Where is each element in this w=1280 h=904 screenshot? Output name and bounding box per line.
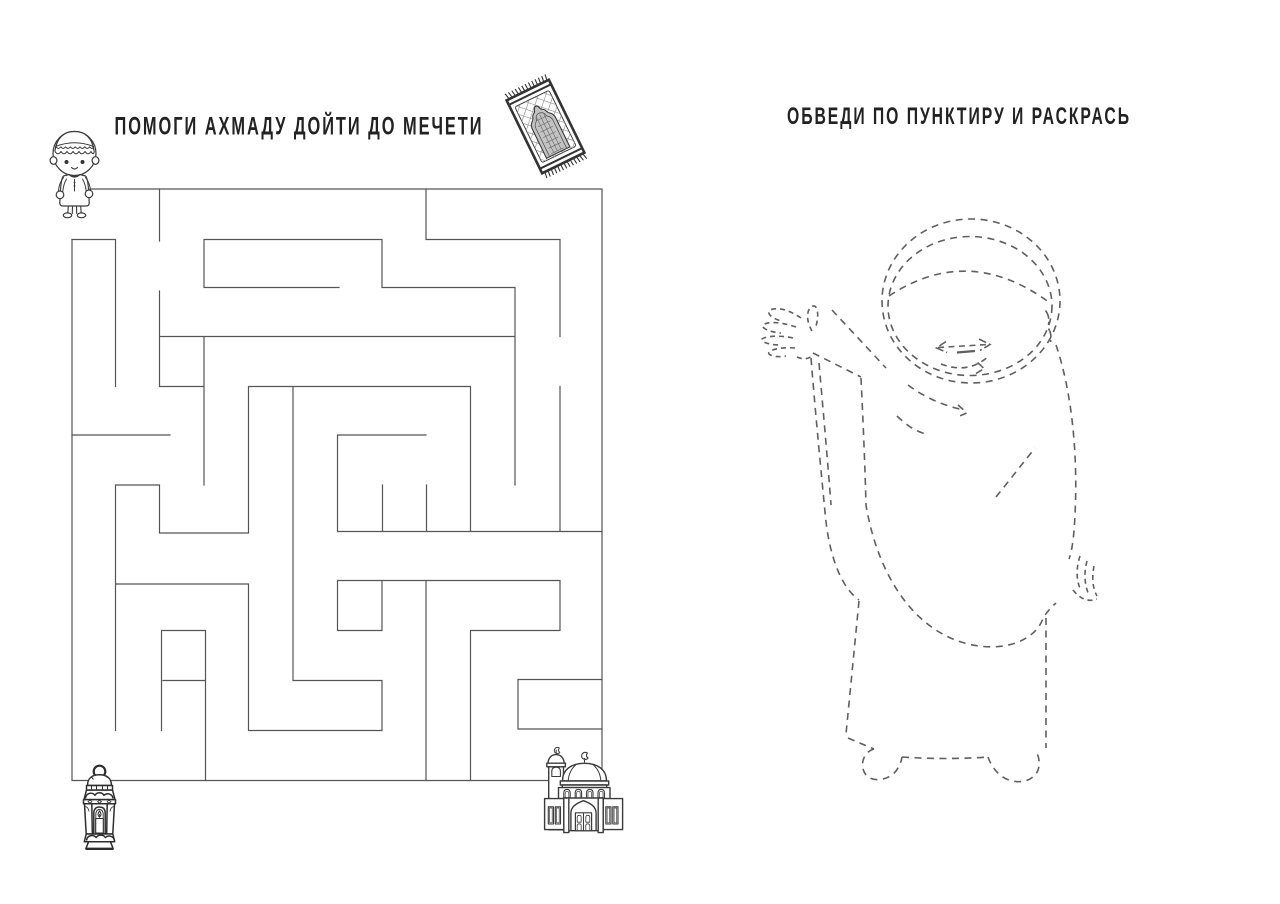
svg-text:ПОМОГИ АХМАДУ ДОЙТИ ДО МЕЧЕТИ: ПОМОГИ АХМАДУ ДОЙТИ ДО МЕЧЕТИ	[114, 112, 483, 140]
svg-text:ОБВЕДИ ПО ПУНКТИРУ И РАСКРАСЬ: ОБВЕДИ ПО ПУНКТИРУ И РАСКРАСЬ	[787, 104, 1131, 130]
